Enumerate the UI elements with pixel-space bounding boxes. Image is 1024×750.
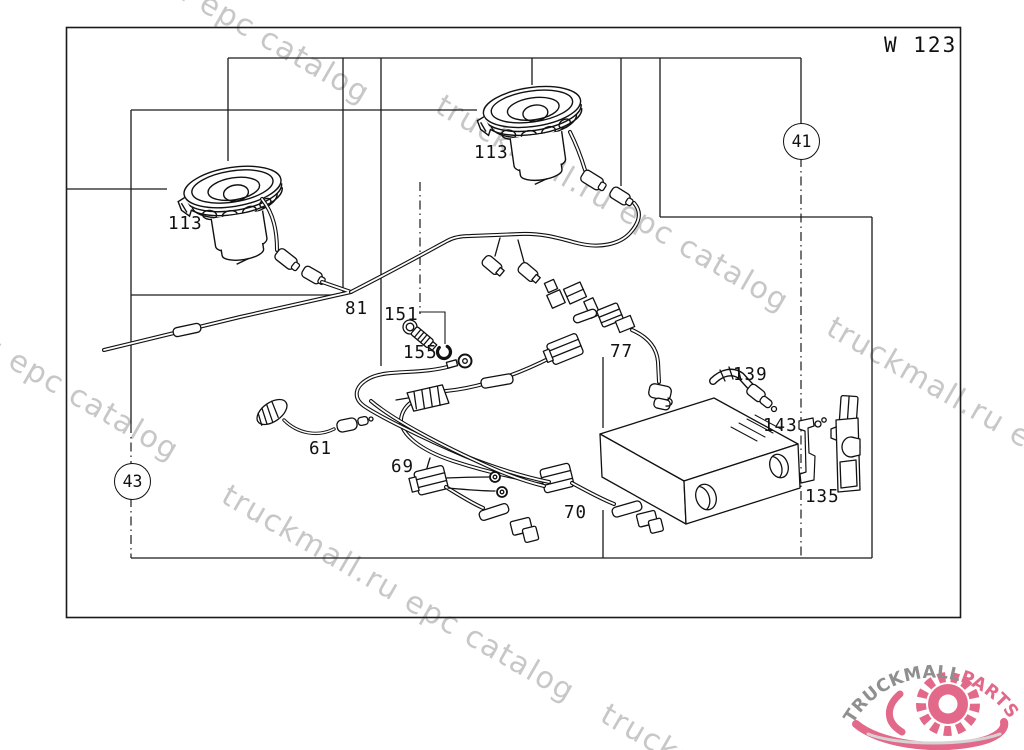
circled-ref-41-text: 41 xyxy=(792,132,812,151)
truckmall-logo: TRUCKMALLPARTS xyxy=(838,646,1024,750)
part-label-113-left: 113 xyxy=(168,214,203,234)
harness-69 xyxy=(357,355,549,546)
part-label-151: 151 xyxy=(384,305,419,325)
left-speaker-cable xyxy=(262,199,327,287)
part-label-69: 69 xyxy=(391,457,414,477)
logo-text-pink: PARTS xyxy=(958,667,1022,722)
model-code: W 123 xyxy=(884,33,957,57)
part-label-77: 77 xyxy=(610,342,633,362)
part-label-135: 135 xyxy=(805,487,840,507)
washer-155 xyxy=(435,343,453,361)
circled-ref-43-text: 43 xyxy=(123,472,143,491)
logo-swoosh-left xyxy=(889,694,902,732)
top-speaker-cable xyxy=(570,132,635,209)
part-label-139: 139 xyxy=(733,365,768,385)
part-label-113-top: 113 xyxy=(474,143,509,163)
bracket-143-drawing xyxy=(799,418,826,483)
part-label-70: 70 xyxy=(564,503,587,523)
part-label-61: 61 xyxy=(309,439,332,459)
part-label-155: 155 xyxy=(403,343,438,363)
diagram-drawing xyxy=(0,0,1024,750)
cable-61 xyxy=(253,394,373,433)
part-label-81: 81 xyxy=(345,299,368,319)
circled-ref-43: 43 xyxy=(114,463,151,500)
circled-ref-41: 41 xyxy=(783,123,820,160)
parts-diagram-page: truckmall.ru epc catalog truckmall.ru ep… xyxy=(0,0,1024,750)
bracket-135-drawing xyxy=(831,395,860,492)
part-label-143: 143 xyxy=(763,416,798,436)
